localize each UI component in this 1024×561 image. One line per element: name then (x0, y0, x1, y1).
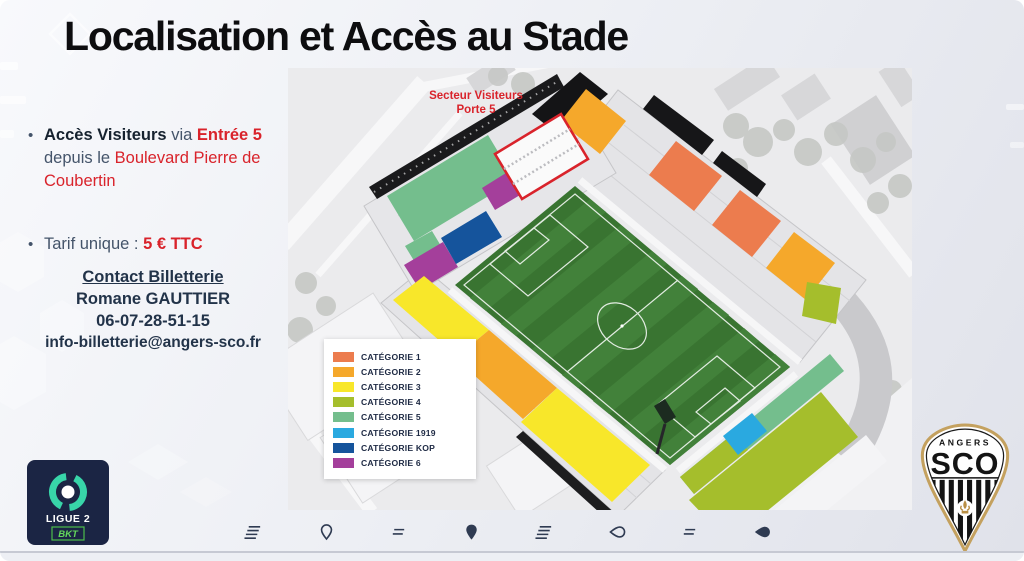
contact-name: Romane GAUTTIER (0, 288, 306, 310)
drop-filled-icon (753, 522, 772, 542)
visitors-sector-label: Secteur Visiteurs Porte 5 (406, 90, 546, 117)
legend-item: CATÉGORIE 3 (333, 379, 467, 394)
ligue2-bkt-logo: LIGUE 2 BKT (27, 460, 109, 550)
sco-main-text: SCO (930, 447, 999, 481)
sector-label-line1: Secteur Visiteurs (406, 90, 546, 104)
legend-item: CATÉGORIE 6 (333, 455, 467, 470)
speed-lines-icon (244, 522, 263, 542)
legend-swatch (333, 352, 354, 362)
legend-item: CATÉGORIE 5 (333, 410, 467, 425)
ligue2-text: LIGUE 2 (46, 513, 90, 525)
legend-item: CATÉGORIE 1919 (333, 425, 467, 440)
legend-swatch (333, 412, 354, 422)
legend-item: CATÉGORIE 4 (333, 395, 467, 410)
access-entrance: Entrée 5 (197, 126, 262, 144)
legend-item: CATÉGORIE KOP (333, 440, 467, 455)
bkt-text: BKT (58, 529, 79, 540)
legend-swatch (333, 428, 354, 438)
contact-phone: 06-07-28-51-15 (0, 310, 306, 332)
contact-email: info-billetterie@angers-sco.fr (0, 332, 306, 354)
legend-swatch (333, 443, 354, 453)
tarif-bullet: Tarif unique : 5 € TTC (22, 233, 290, 256)
slide-canvas: Localisation et Accès au Stade Accès Vis… (0, 0, 1024, 561)
access-lead: Accès Visiteurs (44, 126, 167, 144)
access-bullet: Accès Visiteurs via Entrée 5 depuis le B… (22, 124, 290, 193)
access-from: depuis le (44, 149, 115, 167)
legend-swatch (333, 382, 354, 392)
bullet-list: Accès Visiteurs via Entrée 5 depuis le B… (22, 124, 290, 256)
contact-block: Contact Billetterie Romane GAUTTIER 06-0… (0, 266, 306, 354)
page-title: Localisation et Accès au Stade (64, 13, 628, 60)
map-legend: CATÉGORIE 1 CATÉGORIE 2 CATÉGORIE 3 CATÉ… (324, 339, 476, 479)
angers-sco-logo: ANGERS SCO (916, 421, 1014, 560)
legend-item: CATÉGORIE 1 (333, 349, 467, 364)
drop-outline-icon (608, 522, 627, 542)
tarif-label: Tarif unique : (44, 235, 143, 253)
contact-heading: Contact Billetterie (0, 266, 306, 288)
stadium-map: Secteur Visiteurs Porte 5 CATÉGORIE 1 CA… (288, 68, 912, 510)
footer-icon-strip (244, 521, 772, 543)
sector-label-line2: Porte 5 (406, 104, 546, 118)
legend-item: CATÉGORIE 2 (333, 364, 467, 379)
map-pin-filled-icon (462, 522, 481, 542)
equals-lines-icon (389, 522, 408, 542)
legend-swatch (333, 458, 354, 468)
speed-lines-icon (535, 522, 554, 542)
slide-bottom-edge (0, 551, 1024, 561)
map-pin-outline-icon (317, 522, 336, 542)
legend-swatch (333, 367, 354, 377)
equals-lines-icon (680, 522, 699, 542)
tarif-price: 5 € TTC (143, 235, 203, 253)
legend-swatch (333, 397, 354, 407)
access-via: via (167, 126, 197, 144)
